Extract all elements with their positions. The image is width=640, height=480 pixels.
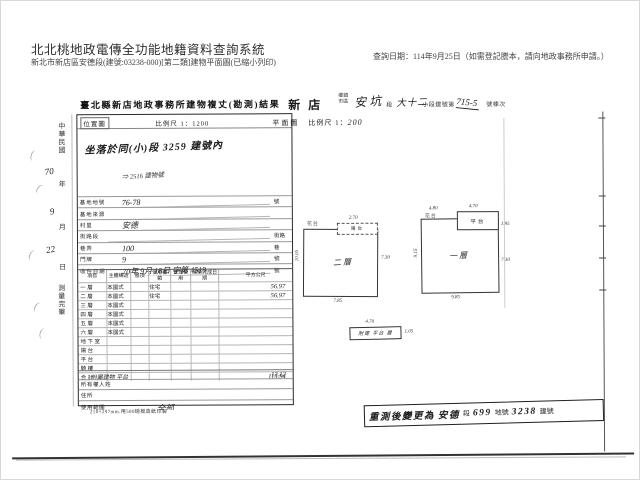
cell-management	[171, 346, 191, 354]
dimension: 2.70	[349, 216, 358, 221]
pencil-mark	[32, 301, 44, 315]
table-row: 六層本國式	[78, 326, 292, 336]
building-info-rows: 基地地號76-78號基地來源村里安德街路段街路巷弄100巷門牌9號收件日期70年…	[78, 195, 292, 276]
dimension: 7.30	[381, 256, 390, 261]
table-row: 四層本國式	[78, 308, 292, 318]
table-row: 二層本國式住宅56.97	[78, 290, 292, 300]
stamp-section: 安德	[438, 407, 460, 422]
row-label: 五層	[78, 319, 106, 327]
cell-roof	[130, 319, 148, 327]
survey-complete-label: 測量完畢	[57, 284, 66, 316]
location-map-scale: 比例尺 1：1200	[155, 118, 209, 128]
cell-completion-date	[190, 328, 218, 336]
cell-structure: 本國式	[106, 319, 130, 327]
annex-detail-box: 附建 平台 層	[349, 326, 401, 340]
cell-use	[148, 301, 170, 309]
cell-use	[149, 346, 171, 354]
field-value	[108, 207, 270, 220]
location-note-secondary: ⇒ 2516 建物號	[121, 169, 164, 181]
scale-value: 200	[348, 118, 363, 127]
plan-scribble: 花台	[425, 212, 437, 219]
pencil-mark	[38, 328, 49, 341]
stamp-parcel: 699	[473, 408, 492, 418]
building-number-label: 號棟次	[486, 99, 506, 108]
table-row: 一層本國式住宅56.97	[78, 281, 292, 291]
cell-area: 56.97	[218, 291, 292, 299]
cell-use	[149, 355, 171, 363]
field-value	[115, 391, 293, 398]
section-label: 段	[386, 100, 392, 109]
building-number: 715-5	[456, 96, 480, 110]
cell-area	[218, 309, 292, 317]
month-unit: 月	[59, 222, 66, 232]
location-note: 坐落於同(小)段 3259 建號內	[84, 136, 223, 157]
floor-plan-label: 平面圖	[272, 118, 299, 128]
field-label: 門牌	[78, 255, 108, 263]
pencil-mark	[27, 249, 39, 262]
dimension: 4.70	[365, 320, 374, 325]
survey-month: 9	[49, 206, 55, 216]
fold-tick	[599, 290, 606, 291]
balcony-outline: 陽台	[337, 223, 378, 235]
cell-structure: 本國式	[106, 283, 130, 291]
survey-form: 位置圖 比例尺 1：1200 坐落於同(小)段 3259 建號內 ⇒ 2516 …	[76, 113, 294, 406]
stamp-section-label: 段	[463, 409, 470, 419]
fold-tick	[598, 118, 605, 119]
field-label: 基地地號	[78, 198, 108, 206]
day-unit: 日	[59, 262, 66, 272]
stamp-building: 3238	[512, 407, 537, 418]
cell-completion-date	[190, 292, 218, 300]
cell-structure: 本國式	[106, 301, 130, 309]
cell-completion-date	[190, 310, 218, 318]
table-row: 地下室	[78, 335, 292, 345]
cell-roof	[130, 328, 148, 336]
field-label: 基地來源	[78, 210, 108, 218]
table-row: 陽台	[79, 344, 293, 354]
row-label: 三層	[78, 301, 106, 309]
cell-use	[148, 337, 170, 345]
stamp-prefix: 重測後變更為	[369, 407, 435, 423]
survey-day: 22	[45, 244, 56, 255]
field-label: 住所	[79, 391, 115, 399]
cell-management	[170, 292, 190, 300]
town-name: 新店	[288, 96, 328, 113]
dimension: 9.15	[414, 249, 419, 258]
field-label: 街路段	[78, 232, 108, 240]
cell-structure	[107, 355, 131, 363]
dimension: 10.05	[295, 250, 300, 261]
first-floor-label: 一層	[449, 250, 470, 262]
fold-tick	[599, 258, 606, 259]
location-map-header: 位置圖 比例尺 1：1200	[77, 114, 291, 129]
table-row: 五層本國式	[78, 317, 292, 327]
field-label: 巷弄	[78, 244, 108, 252]
field-suffix: 號	[274, 254, 292, 262]
paper-spec-note: 210×297mm.用500磅模造紙印製	[90, 408, 167, 415]
platform-outline: 平台	[457, 211, 499, 230]
cell-completion-date	[190, 283, 218, 291]
cell-roof	[130, 310, 148, 318]
cell-area	[219, 354, 293, 362]
resurvey-stamp: 重測後變更為 安德 段 699 地號 3238 建號	[364, 399, 604, 427]
section-name: 安坑	[354, 92, 385, 111]
cell-structure	[107, 337, 131, 345]
cell-use	[148, 328, 170, 336]
cell-management	[171, 355, 191, 363]
dimension: 1.05	[404, 330, 413, 335]
cell-area	[218, 318, 292, 326]
subsection-label: 小段建號第	[422, 99, 455, 108]
cell-management	[170, 337, 190, 345]
cell-area	[219, 345, 293, 353]
cell-use: 住宅	[148, 283, 170, 291]
cell-roof	[131, 346, 149, 354]
pencil-mark	[29, 150, 40, 163]
cell-management	[170, 319, 190, 327]
cell-roof	[131, 337, 149, 345]
row-label: 四層	[78, 310, 106, 318]
era-label: 中華民國	[57, 122, 66, 154]
cell-structure: 本國式	[106, 310, 130, 318]
field-label: 所有權人姓名	[79, 380, 115, 389]
row-label: 地下室	[79, 337, 107, 345]
plan-scribble: 花台	[307, 220, 319, 227]
row-label: 一層	[78, 283, 106, 291]
cell-roof	[130, 283, 148, 291]
cell-management	[170, 310, 190, 318]
cell-structure	[107, 346, 131, 354]
cell-management	[170, 328, 190, 336]
dimension: 4.70	[469, 204, 478, 209]
pencil-mark	[34, 183, 47, 197]
second-floor-label: 二層	[333, 256, 354, 268]
stamp-building-label: 建號	[540, 406, 554, 416]
cell-completion-date	[190, 301, 218, 309]
row-label: 二層	[78, 292, 106, 300]
cell-structure: 本國式	[106, 328, 130, 336]
scale-prefix: 比例尺 1：	[308, 119, 347, 127]
query-system-page: 北北桃地政電傳全功能地籍資料查詢系統 新北市新店區安德段(建號:03238-00…	[0, 0, 640, 480]
field-label: 村里	[78, 221, 108, 229]
cell-completion-date	[190, 337, 218, 345]
cell-area	[218, 327, 292, 335]
table-row: 三層本國式	[78, 299, 292, 309]
row-label: 平台	[79, 355, 107, 363]
cell-completion-date	[190, 319, 218, 327]
cell-use	[148, 310, 170, 318]
area-table-rows: 一層本國式住宅56.97二層本國式住宅56.97三層本國式四層本國式五層本國式六…	[78, 281, 293, 381]
row-label: 六層	[78, 328, 106, 336]
field-value: 100	[108, 241, 270, 254]
cell-management	[170, 283, 190, 291]
cell-area: 56.97	[218, 282, 292, 290]
cell-roof	[130, 301, 148, 309]
cell-use	[148, 319, 170, 327]
fold-tick	[599, 196, 606, 197]
fold-tick	[599, 226, 606, 227]
field-suffix: 號	[274, 197, 292, 205]
town-label: 鄉鎮市區	[338, 94, 350, 105]
dimension: 7.85	[333, 299, 342, 304]
owner-rows: 所有權人姓名住所使用範圍全部	[79, 378, 293, 410]
table-row: 平台	[79, 353, 293, 363]
survey-year: 70	[44, 166, 54, 177]
year-unit: 年	[59, 179, 66, 189]
location-map-label: 位置圖	[80, 117, 109, 129]
cell-completion-date	[191, 355, 219, 363]
cell-structure: 本國式	[106, 292, 130, 300]
dimension: 1.95	[501, 222, 510, 227]
row-label: 陽台	[79, 346, 107, 354]
cell-completion-date	[191, 346, 219, 354]
cell-roof	[131, 355, 149, 363]
cell-area	[218, 300, 292, 308]
field-suffix: 巷	[274, 243, 292, 251]
form-outer-line	[71, 114, 74, 406]
floor-plan-scale: 比例尺 1：200	[308, 118, 362, 128]
cell-roof	[130, 292, 148, 300]
paper-fold-line-faint	[503, 118, 505, 308]
scanned-document: 臺北縣新店地政事務所建物複丈(勘測)結果 中華民國 70 年 9 月 22 日 …	[0, 0, 640, 480]
dimension: 9.85	[451, 295, 460, 300]
dimension: 4.80	[429, 206, 438, 211]
dimension: 7.30	[501, 258, 510, 263]
field-suffix: 街路	[274, 232, 292, 240]
cell-management	[170, 301, 190, 309]
cell-area	[218, 336, 292, 344]
stamp-parcel-label: 地號	[495, 408, 509, 418]
survey-title: 臺北縣新店地政事務所建物複丈(勘測)結果	[80, 97, 280, 111]
cell-use: 住宅	[148, 292, 170, 300]
